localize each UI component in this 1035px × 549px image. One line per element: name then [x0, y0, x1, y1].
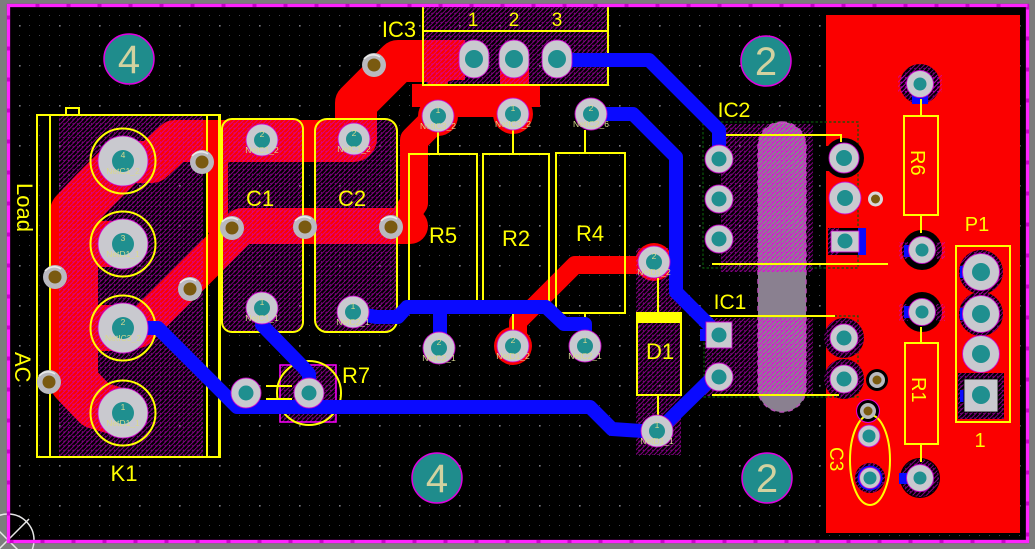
svg-text:IC2: IC2	[718, 99, 751, 122]
svg-text:1: 1	[974, 430, 985, 452]
svg-text:1: 1	[511, 103, 516, 113]
svg-text:2: 2	[352, 128, 357, 138]
svg-text:4: 4	[426, 457, 448, 501]
svg-text:NetC1_2: NetC1_2	[106, 166, 140, 176]
svg-text:C1: C1	[246, 186, 274, 211]
svg-text:1: 1	[436, 105, 441, 115]
svg-text:1: 1	[655, 420, 660, 430]
svg-text:NetC2_1: NetC2_1	[568, 351, 602, 361]
svg-text:2: 2	[652, 251, 657, 261]
svg-text:C3: C3	[825, 447, 846, 471]
svg-text:2: 2	[511, 335, 516, 345]
svg-text:2: 2	[121, 317, 126, 327]
svg-text:2: 2	[756, 457, 778, 501]
svg-text:NetIC3_2: NetIC3_2	[420, 121, 456, 131]
svg-text:NetD1_1: NetD1_1	[106, 249, 140, 259]
svg-text:1: 1	[583, 335, 588, 345]
svg-text:NetC2_1: NetC2_1	[336, 317, 370, 327]
svg-text:C2: C2	[338, 186, 366, 211]
svg-text:1: 1	[260, 297, 265, 307]
svg-text:NetD1_1: NetD1_1	[106, 418, 140, 428]
svg-text:R5: R5	[429, 223, 457, 248]
svg-text:2: 2	[509, 10, 520, 31]
svg-text:1: 1	[468, 10, 479, 31]
svg-text:3: 3	[552, 10, 563, 31]
svg-text:D1: D1	[646, 339, 674, 364]
svg-text:IC1: IC1	[714, 291, 747, 314]
svg-text:2: 2	[260, 129, 265, 139]
svg-text:NetC1_2: NetC1_2	[245, 145, 279, 155]
svg-text:P1: P1	[965, 214, 989, 236]
svg-text:R1: R1	[907, 377, 929, 403]
svg-text:IC3: IC3	[382, 17, 416, 42]
svg-text:AC: AC	[10, 352, 35, 383]
svg-text:1: 1	[121, 402, 126, 412]
svg-text:NetD1_2: NetD1_2	[496, 351, 530, 361]
svg-text:2: 2	[437, 337, 442, 347]
svg-text:NetIC3_2: NetIC3_2	[495, 119, 531, 129]
svg-text:3: 3	[121, 233, 126, 243]
svg-text:R4: R4	[576, 221, 604, 246]
svg-text:4: 4	[121, 150, 126, 160]
svg-text:NetC1_2: NetC1_2	[337, 144, 371, 154]
svg-text:NetIC3_2: NetIC3_2	[105, 333, 141, 343]
svg-text:2: 2	[755, 40, 777, 84]
svg-text:NetIC2_6: NetIC2_6	[573, 119, 609, 129]
svg-text:K1: K1	[111, 461, 138, 486]
svg-text:NetC1_1: NetC1_1	[245, 313, 279, 323]
svg-text:4: 4	[118, 38, 140, 82]
svg-text:1: 1	[351, 301, 356, 311]
svg-text:NetD1_1: NetD1_1	[640, 436, 674, 446]
svg-text:2: 2	[589, 103, 594, 113]
svg-text:R2: R2	[502, 226, 530, 251]
svg-text:NetC2_1: NetC2_1	[422, 353, 456, 363]
svg-text:R6: R6	[906, 150, 928, 176]
svg-text:Load: Load	[12, 183, 37, 232]
svg-text:R7: R7	[342, 363, 370, 388]
svg-text:NetD1_2: NetD1_2	[637, 267, 671, 277]
